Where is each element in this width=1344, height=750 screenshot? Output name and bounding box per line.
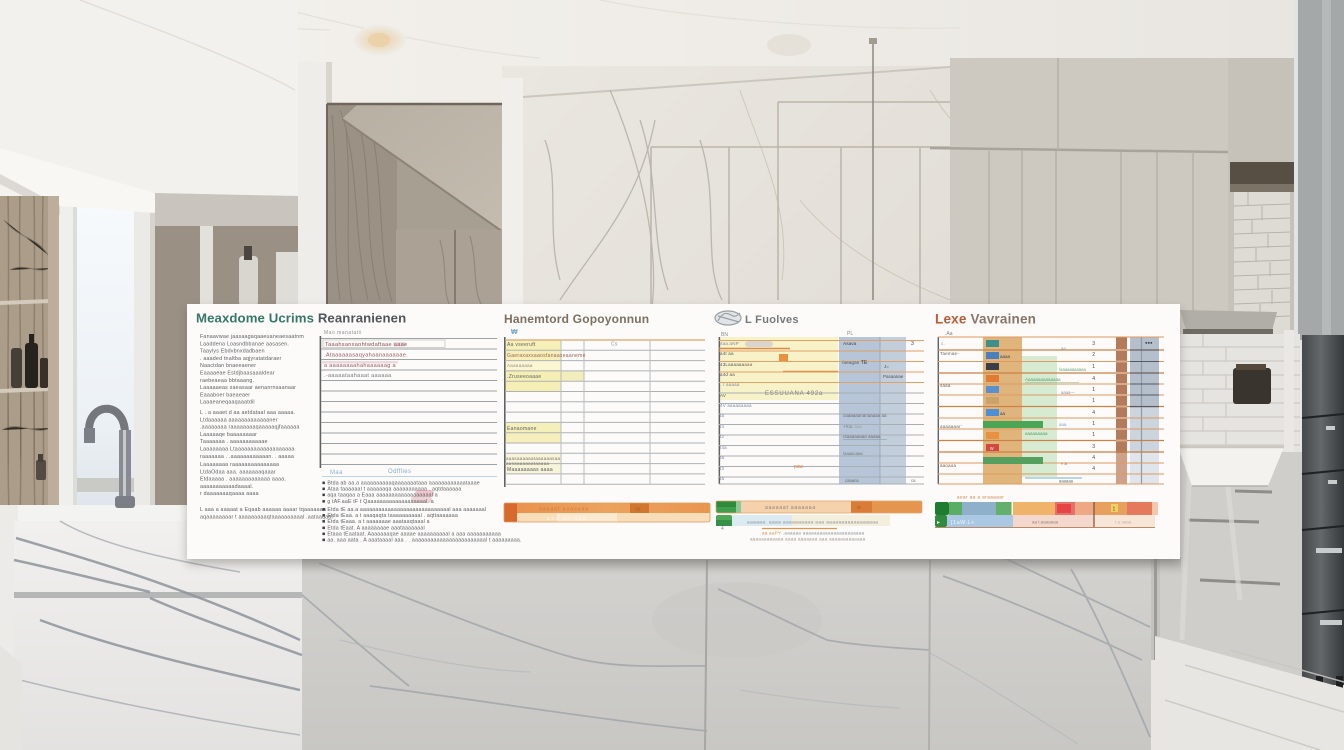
svg-text:1: 1	[1092, 421, 1095, 427]
svg-text:/aaaacaaa: /aaaacaaa	[843, 451, 863, 456]
svg-text:c.: c.	[941, 341, 945, 346]
svg-text:.aaaaaaaa raaaaaaaaqaaaaaqjfa: .aaaaaaaa raaaaaaaaqaaaaaqjfaaaaaa	[200, 425, 300, 431]
svg-text:ta: ta	[720, 455, 724, 460]
svg-text:aaaa—: aaaa—	[1061, 390, 1075, 395]
svg-text:L Fuolves: L Fuolves	[745, 314, 799, 326]
svg-text:43Laaaaaaaaa: 43Laaaaaaaaa	[720, 362, 753, 367]
svg-text:t2: t2	[720, 434, 724, 439]
svg-text:■Etda tEaa. a t aaaqaqta taaa: ■Etda tEaa. a t aaaqaqta taaaaaaaaaal . …	[322, 513, 458, 519]
svg-text:caaaaaananaaaaa aa: caaaaaananaaaaa aa	[843, 413, 887, 418]
svg-text:r daaaaaaaqaaaa aaaa: r daaaaaaaqaaaa aaaa	[200, 491, 259, 497]
svg-text:Taaahsanxaohtwdaftaae aaae: Taaahsanxaohtwdaftaae aaae	[325, 342, 407, 348]
svg-text:LtdaOdaa aaa. aaaaaaaqaaar: LtdaOdaa aaa. aaaaaaaqaaar	[200, 469, 276, 475]
svg-text:aaoaoa: aaoaoa	[940, 463, 957, 468]
svg-text:Hanemtord Gopoyonnun: Hanemtord Gopoyonnun	[504, 312, 649, 326]
svg-text:■aqa taaqaa a Eaaa aaaaaaaaaa: ■aqa taaqaa a Eaaa aaaaaaaaaaaaaaaaaal a	[322, 493, 438, 499]
svg-text:aqaaaaaaaar t aaaaaaaaaqtaaaaa: aqaaaaaaaar t aaaaaaaaaqtaaaaaaaaaal .aa…	[200, 514, 333, 520]
svg-text:3: 3	[911, 341, 914, 347]
svg-text:■Etda tE aa.a aaaaaaaaaaaaaaa: ■Etda tE aa.a aaaaaaaaaaaaaaaaaaaaaaaaaa…	[322, 507, 486, 513]
svg-text:Laaddena Loasndbbanae aasasen.: Laaddena Loasndbbanae aasasen.	[200, 341, 289, 347]
svg-text:aaaaaat aaaaaaa: aaaaaat aaaaaaa	[765, 505, 816, 511]
svg-text:/4aaaaaaaa aaaaa: /4aaaaaaaa aaaaa	[843, 434, 881, 439]
svg-text:Ltdaaaaaa aaaaaaaaaaaaaner: Ltdaaaaaa aaaaaaaaaaaaaner	[200, 417, 278, 423]
svg-text:Cs: Cs	[611, 342, 618, 348]
svg-text:Eanaomane: Eanaomane	[507, 426, 537, 432]
svg-text:.Aa: .Aa	[945, 331, 953, 337]
svg-text:t4: t4	[720, 424, 724, 429]
svg-text:L aaa a aaaaat a Eqaab aaaaaa: L aaa a aaaaat a Eqaab aaaaaa aaaar tqaa…	[200, 507, 326, 513]
svg-text:a aaaaaaaahahaaaaaag a: a aaaaaaaahahaaaaaag a	[324, 363, 397, 369]
svg-text:. aaaded tnaltba aqjyratatdar: . aaaded tnaltba aqjyratatdaraer	[200, 356, 282, 362]
svg-text:■Ataa taaaaaal t aaaaaaqa aaa: ■Ataa taaaaaal t aaaaaaqa aaaaaaaaaaa . …	[322, 487, 461, 493]
svg-text:ta: ta	[720, 413, 724, 418]
svg-text:L . a aaaet d aa aetdataal aa: L . a aaaet d aa aetdataal aaa aaaaa.	[200, 410, 295, 416]
svg-text:4aa.aNP: 4aa.aNP	[720, 341, 739, 346]
svg-text:■Btda ab aa.a aaaaaaaaaaqaaaaa: ■Btda ab aa.a aaaaaaaaaaqaaaaaaataaa aaa…	[322, 481, 480, 487]
svg-text:Meaxdome Ucrims Reanranienen: Meaxdome Ucrims Reanranienen	[196, 311, 406, 326]
svg-text:aaaaaa. aaaa aaaaaaaaaa aaa: aaaaaa. aaaa aaaaaaaaaa aaa aaaaaaaaaaaa…	[747, 521, 878, 526]
svg-text:aaaaaa: aaaaaa	[1059, 479, 1074, 484]
svg-text:aasaaaaaaataaaaa: aasaaaaaaataaaaa	[506, 461, 550, 466]
svg-text:■Etda tEaat. A aaaaaaaae aaat: ■Etda tEaat. A aaaaaaaae aaataaaaaaal	[322, 525, 425, 531]
svg-text:Taemae-: Taemae-	[940, 351, 959, 356]
svg-text:saaa: saaa	[940, 383, 951, 388]
svg-text:w: w	[990, 446, 994, 452]
svg-text:aaa.: aaa.	[1059, 422, 1067, 427]
svg-text:aaa aa aaa: aaa aa aaa	[547, 516, 587, 522]
svg-text:aa: aa	[635, 507, 641, 513]
svg-text:3: 3	[1092, 444, 1095, 450]
svg-text:1: 1	[1113, 507, 1116, 513]
svg-text:Aa vseeruft: Aa vseeruft	[507, 342, 536, 348]
svg-text:4: 4	[1092, 410, 1095, 416]
svg-text:Fanaavwae jaasaagaqaaeuaneaesa: Fanaavwae jaasaagaqaaeuaneaesaatnm	[200, 334, 304, 340]
svg-text:1: 1	[1092, 387, 1095, 393]
svg-text:4: 4	[1092, 376, 1095, 382]
svg-text:Gaeraxaxsaaosfanaaxeaaneme: Gaeraxaxsaaosfanaaxeaaneme	[507, 353, 586, 359]
svg-text:aa: aa	[1061, 346, 1066, 351]
svg-text:aaaaat aaaaaaa: aaaaat aaaaaaa	[539, 507, 589, 513]
svg-text:raebeaeaa bbtaaang.: raebeaeaa bbtaaang.	[200, 378, 254, 384]
svg-text:t3: t3	[720, 466, 724, 471]
svg-text:Asava: Asava	[843, 341, 857, 347]
svg-text:aaaaaaaaaaadaaaal.: aaaaaaaaaaadaaaal.	[200, 484, 253, 490]
svg-text:Odfflies: Odfflies	[388, 469, 411, 475]
svg-text:4: 4	[1092, 466, 1095, 472]
svg-text:Eaaaboer baeaeaer: Eaaaboer baeaeaer	[200, 392, 250, 398]
svg-text:ca: ca	[911, 478, 916, 483]
svg-text:■Etaaa tEaataat. Aaaaaaaqae a: ■Etaaa tEaataat. Aaaaaaaqae aaaae aaaaaa…	[322, 531, 501, 537]
svg-text:aaaaaaaaa: aaaaaaaaa	[1025, 431, 1048, 436]
svg-text:aaaa: aaaa	[1000, 354, 1011, 359]
svg-text:Naactdan bnaeeaener: Naactdan bnaeeaener	[200, 363, 256, 369]
svg-text:.Zruseeoaaae: .Zruseeoaaae	[507, 374, 541, 380]
svg-text:Maaaaaaaas aaaa: Maaaaaaaas aaaa	[507, 467, 553, 473]
svg-text:■aa. aaa aata . A aaataaaal a: ■aa. aaa aata . A aaataaaal aaa . . aaaa…	[322, 538, 522, 544]
svg-text:₩: ₩	[511, 329, 518, 336]
svg-text:Eaaaaeae Estdjbaasaaaldear: Eaaaaeae Estdjbaasaaaldear	[200, 371, 275, 377]
svg-text:Taaylys Ebdvbnxdadbaen: Taaylys Ebdvbnxdadbaen	[200, 349, 265, 355]
svg-text:/aeagan TE: /aeagan TE	[842, 360, 868, 366]
svg-text:3: 3	[1092, 341, 1095, 347]
svg-text:4V aaaaaaaaa: 4V aaaaaaaaa	[720, 403, 752, 408]
svg-text:aa: aa	[1000, 411, 1006, 416]
svg-text:Aaaaaaaaa: Aaaaaaaaa	[507, 363, 533, 368]
svg-text:+Y.a. aaa: +Y.a. aaa	[843, 424, 862, 429]
svg-text:aaaaaaaaaaaa aaaa aaaaaaa aaa: aaaaaaaaaaaa aaaa aaaaaaa aaa aaaaaaaaaa…	[750, 537, 866, 542]
svg-text:w: w	[857, 505, 861, 511]
svg-text:▸: ▸	[937, 520, 940, 526]
svg-text:1: 1	[1092, 364, 1095, 370]
svg-text:Mao manatatii: Mao manatatii	[324, 330, 362, 336]
svg-text:Laaaaaaaa raaaaaaaaaaaaaaa: Laaaaaaaa raaaaaaaaaaaaaaa	[200, 462, 279, 468]
svg-text:ta: ta	[720, 476, 724, 481]
svg-text:●●●: ●●●	[1145, 340, 1153, 345]
svg-text:aa aaPY .aaaaaa aaaaaaaaaaa: aa aaPY .aaaaaa aaaaaaaaaaaaaaaaaaaaaa	[762, 531, 865, 536]
svg-text:■Etda tEaaa. a t aaaaaaae aa: ■Etda tEaaa. a t aaaaaaae aaataaqtaaal a	[322, 519, 430, 525]
svg-text:ESSUUANA 492a: ESSUUANA 492a	[765, 391, 823, 397]
svg-text:Taaaaaaa . aaaaaaaaaaae: Taaaaaaa . aaaaaaaaaaae	[200, 439, 268, 445]
svg-text:Laaaaaaaa Ltaaaaaaaaaaaaaaaaa: Laaaaaaaa Ltaaaaaaaaaaaaaaaaaaa	[200, 447, 295, 453]
svg-text:Laaaeaneqaaqaaatdil: Laaaeaneqaaqaaatdil	[200, 400, 255, 406]
svg-text:1: 1	[1092, 432, 1095, 438]
svg-text:Lexe Vavrainen: Lexe Vavrainen	[935, 312, 1036, 327]
svg-text:.Ataaaaaasaqyahaanaaaaaae.: .Ataaaaaasaqyahaanaaaaaae.	[324, 353, 408, 359]
svg-text:4: 4	[1092, 455, 1095, 461]
svg-text:t4a: t4a	[720, 445, 727, 450]
svg-text:Maa: Maa	[330, 470, 343, 476]
svg-text:Laaaaaqe baaaaaaaar: Laaaaaqe baaaaaaaar	[200, 432, 257, 438]
svg-text:a4t aa: a4t aa	[720, 351, 734, 356]
svg-text:Laaaaaeas saeasaar aenanrnsaa: Laaaaaeas saeasaar aenanrnsaanaar	[200, 385, 296, 391]
svg-text:■g tAF.aaE tF t Qaaaaaaaaaaaa: ■g tAF.aaE tF t Qaaaaaaaaaaaaaaaaaaal. a	[322, 499, 434, 505]
svg-text:AV: AV	[720, 393, 726, 398]
svg-text:Aaaaaaaaaaaaaa: Aaaaaaaaaaaaaa	[1025, 377, 1061, 382]
svg-text:aa t.aaaaaaa: aa t.aaaaaaa	[1032, 520, 1059, 525]
svg-text:paw: paw	[794, 464, 804, 470]
svg-text:[1aW.L+: [1aW.L+	[951, 520, 975, 526]
svg-text:PL: PL	[847, 331, 853, 337]
svg-text:/aaaaaaaaaaa: /aaaaaaaaaaa	[1059, 367, 1086, 372]
svg-text:.-aaaaataahaaat aaaaaa: .-aaaaataahaaat aaaaaa	[324, 373, 392, 379]
svg-text:t a aaaa: t a aaaa	[1115, 520, 1132, 525]
svg-text:1: 1	[1092, 398, 1095, 404]
svg-text:a4d aa: a4d aa	[720, 372, 735, 377]
svg-text:aear aa a araaaaar: aear aa a araaaaar	[957, 495, 1004, 500]
svg-text:. r aaaaa: . r aaaaa	[720, 382, 740, 387]
svg-text:raaaaaaa . .aaaaaaaaaaaan. .: raaaaaaa . .aaaaaaaaaaaan. . aaaaa	[200, 454, 294, 460]
svg-text:J=: J=	[884, 364, 889, 369]
svg-text:aaaaaaar’: aaaaaaar’	[940, 424, 962, 429]
svg-text:Pasaanae: Pasaanae	[883, 374, 904, 379]
svg-text:caaana: caaana	[845, 478, 859, 483]
svg-text:Etdaaaaa . aaaaaaaaaaaaa: Etdaaaaa . aaaaaaaaaaaaa aaaa.	[200, 477, 286, 483]
svg-text:2: 2	[1092, 352, 1095, 358]
svg-text:4: 4	[721, 526, 724, 532]
svg-text:« a: « a	[1061, 461, 1067, 466]
